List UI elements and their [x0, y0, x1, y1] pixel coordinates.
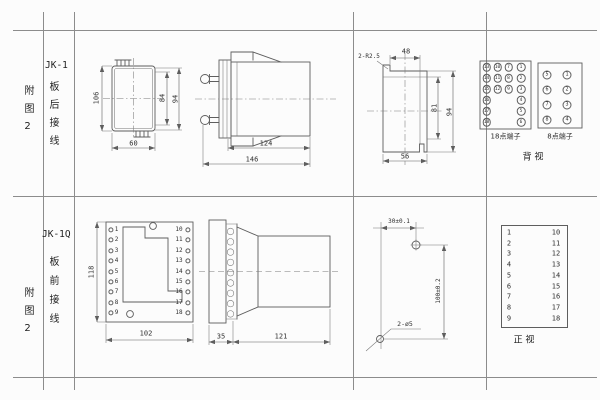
wiring-type-label-top: 板后接线 — [47, 81, 57, 153]
terminal-number: 14 — [175, 269, 182, 275]
table-number: 8 — [507, 305, 511, 312]
table-number: 12 — [552, 251, 560, 258]
terminal-block-8-label: 8点端子 — [547, 134, 572, 141]
terminal-circle: 7 — [504, 63, 513, 72]
jk1-side-view-drawing — [195, 52, 336, 167]
terminal-circle: 5 — [543, 70, 552, 79]
terminal-circle: 1 — [517, 63, 526, 72]
table-number: 2 — [507, 241, 511, 248]
table-number: 17 — [552, 305, 560, 312]
dim-label-100: 100±0.2 — [436, 278, 442, 303]
dim-label-48: 48 — [402, 49, 410, 56]
terminal-circle: 8 — [543, 115, 552, 124]
table-number: 9 — [507, 316, 511, 323]
table-number: 11 — [552, 241, 560, 248]
terminal-number: 17 — [175, 300, 182, 306]
table-number: 13 — [552, 262, 560, 269]
terminal-circle: 10 — [493, 63, 502, 72]
datasheet-page: 附图2 JK-1 板后接线 附图2 JK-1Q 板前接线 106 84 94 6… — [0, 0, 600, 400]
terminal-circle: 6 — [517, 118, 526, 127]
dim-label-121: 121 — [275, 333, 288, 340]
terminal-number: 4 — [115, 258, 119, 264]
terminal-circle: 13 — [482, 63, 491, 72]
table-number: 6 — [507, 284, 511, 291]
rear-view-label: 背 视 — [523, 154, 544, 163]
dim-label-106: 106 — [94, 92, 101, 105]
terminal-circle: 4 — [517, 96, 526, 105]
terminal-number: 15 — [175, 279, 182, 285]
table-number: 5 — [507, 273, 511, 280]
terminal-number: 7 — [115, 289, 119, 295]
terminal-circle: 15 — [482, 85, 491, 94]
terminal-circle: 11 — [493, 74, 502, 83]
terminal-number: 11 — [175, 237, 182, 243]
terminal-circle: 3 — [517, 85, 526, 94]
terminal-circle: 6 — [543, 85, 552, 94]
dim-label-35: 35 — [217, 333, 225, 340]
dim-label-56: 56 — [401, 154, 409, 161]
terminal-circle: 4 — [563, 115, 572, 124]
terminal-number: 6 — [115, 279, 119, 285]
dim-label-81: 81 — [431, 104, 438, 112]
model-label-jk1q: JK-1Q — [42, 230, 71, 240]
terminal-number: 3 — [115, 248, 119, 254]
terminal-number: 12 — [175, 248, 182, 254]
table-number: 16 — [552, 294, 560, 301]
wiring-type-label-bottom: 板前接线 — [47, 256, 57, 332]
front-view-label: 正 视 — [514, 337, 535, 346]
dim-label-2-r2-5: 2-R2.5 — [358, 54, 380, 60]
table-number: 15 — [552, 284, 560, 291]
jk1-panel-cutout-drawing — [367, 53, 456, 165]
dim-label-94-cutout: 94 — [446, 107, 453, 115]
table-number: 3 — [507, 251, 511, 258]
table-number: 10 — [552, 230, 560, 237]
terminal-circle: 16 — [482, 96, 491, 105]
terminal-circle: 9 — [504, 85, 513, 94]
model-label-jk1: JK-1 — [45, 61, 68, 71]
table-number: 1 — [507, 230, 511, 237]
terminal-circle: 5 — [517, 107, 526, 116]
terminal-circle: 8 — [504, 74, 513, 83]
jk1-front-view-drawing — [102, 58, 182, 151]
terminal-circle: 14 — [482, 74, 491, 83]
figure-label-top: 附图2 — [22, 85, 32, 140]
terminal-number: 2 — [115, 237, 119, 243]
dim-label-118: 118 — [89, 266, 96, 279]
terminal-circle: 2 — [563, 85, 572, 94]
terminal-circle: 12 — [493, 85, 502, 94]
dim-label-30: 30±0.1 — [388, 219, 410, 225]
terminal-number: 8 — [115, 300, 119, 306]
figure-label-bottom: 附图2 — [22, 287, 32, 342]
table-number: 18 — [552, 316, 560, 323]
dim-label-60: 60 — [129, 141, 137, 148]
terminal-number: 9 — [115, 310, 119, 316]
dim-label-2-o5: 2-ø5 — [397, 321, 413, 328]
table-number: 14 — [552, 273, 560, 280]
terminal-number: 16 — [175, 289, 182, 295]
dim-label-94: 94 — [172, 95, 179, 103]
terminal-number: 5 — [115, 269, 119, 275]
table-number: 4 — [507, 262, 511, 269]
terminal-number: 1 — [115, 227, 119, 233]
terminal-block-18-label: 18点端子 — [491, 134, 521, 141]
terminal-circle: 2 — [517, 74, 526, 83]
table-number: 7 — [507, 294, 511, 301]
terminal-number: 18 — [175, 310, 182, 316]
dim-label-102: 102 — [140, 331, 153, 338]
terminal-circle: 18 — [482, 118, 491, 127]
dim-label-146: 146 — [246, 157, 259, 164]
terminal-circle: 7 — [543, 100, 552, 109]
drawing-linework — [0, 0, 600, 400]
dim-label-124: 124 — [260, 141, 273, 148]
terminal-circle: 1 — [563, 70, 572, 79]
dim-label-84: 84 — [160, 94, 167, 102]
terminal-circle: 3 — [563, 100, 572, 109]
terminal-number: 10 — [175, 227, 182, 233]
terminal-circle: 17 — [482, 107, 491, 116]
terminal-number: 13 — [175, 258, 182, 264]
jk1q-side-view-drawing — [199, 220, 341, 345]
